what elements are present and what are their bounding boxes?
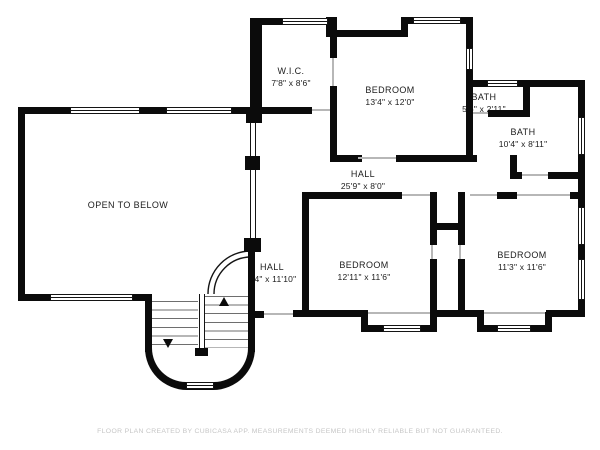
- window: [413, 17, 461, 24]
- room-label-bath: BATH 10'4" x 8'11": [499, 127, 548, 149]
- wall-segment: [18, 107, 25, 301]
- wall-segment: [430, 259, 437, 317]
- door-opening: [470, 194, 497, 196]
- wall-segment: [293, 310, 368, 317]
- room-name: W.I.C.: [271, 66, 310, 76]
- wall-segment: [330, 30, 408, 37]
- wall-segment: [578, 155, 585, 207]
- wall-segment: [18, 294, 50, 301]
- railing: [199, 294, 205, 350]
- wall-segment: [18, 107, 70, 114]
- wall-segment: [430, 192, 437, 245]
- wall-segment: [430, 223, 465, 230]
- room-dimensions: 7'8" x 8'6": [271, 78, 310, 88]
- window: [487, 80, 518, 87]
- wall-segment: [466, 80, 487, 87]
- room-dimensions: 11'3" x 11'6": [497, 262, 546, 272]
- wall-segment: [497, 192, 517, 199]
- door-opening: [368, 312, 430, 314]
- room-name: HALL: [341, 169, 385, 179]
- wall-segment: [488, 110, 530, 117]
- wall-segment: [361, 325, 385, 332]
- room-name: BEDROOM: [338, 260, 391, 270]
- wall-segment: [140, 107, 166, 114]
- wall-segment: [578, 245, 585, 259]
- wall-segment: [262, 107, 312, 114]
- door-opening: [402, 194, 430, 196]
- room-label-hall-upper: HALL 25'9" x 8'0": [341, 169, 385, 191]
- door-opening: [473, 112, 488, 114]
- stairs-down-arrow-icon: [163, 339, 173, 348]
- staircase-flight-down: [152, 301, 198, 348]
- door-opening: [332, 58, 334, 86]
- window: [578, 259, 585, 300]
- room-label-bedroom-left: BEDROOM 12'11" x 11'6": [338, 260, 391, 282]
- wall-segment: [578, 80, 585, 117]
- door-opening: [459, 245, 461, 259]
- window: [70, 107, 140, 114]
- room-name: OPEN TO BELOW: [88, 200, 168, 210]
- window: [466, 48, 473, 70]
- door-opening: [484, 312, 545, 314]
- door-opening: [358, 157, 396, 159]
- wall-segment: [248, 245, 255, 352]
- wall-segment: [330, 17, 337, 58]
- wall-segment: [195, 348, 208, 356]
- floor-plan: OPEN TO BELOW W.I.C. 7'8" x 8'6" BEDROOM…: [0, 0, 600, 450]
- room-label-open-to-below: OPEN TO BELOW: [88, 200, 168, 210]
- door-opening: [522, 174, 548, 176]
- wall-segment: [510, 172, 522, 179]
- wall-segment: [245, 156, 260, 170]
- wall-segment: [421, 325, 437, 332]
- railing: [250, 123, 256, 238]
- door-opening: [264, 313, 293, 315]
- wall-segment: [430, 310, 484, 317]
- room-name: BATH: [499, 127, 548, 137]
- wall-segment: [570, 192, 585, 199]
- wall-segment: [458, 192, 465, 245]
- door-opening: [431, 245, 433, 259]
- wall-segment: [302, 192, 309, 317]
- wall-segment: [244, 238, 261, 252]
- room-dimensions: 12'11" x 11'6": [338, 272, 391, 282]
- room-label-bedroom-top: BEDROOM 13'4" x 12'0": [365, 85, 414, 107]
- door-opening: [312, 109, 330, 111]
- window: [186, 382, 214, 389]
- wall-segment: [330, 86, 337, 162]
- window: [282, 18, 328, 25]
- room-dimensions: 10'4" x 8'11": [499, 139, 548, 149]
- room-name: BEDROOM: [365, 85, 414, 95]
- wall-segment: [246, 107, 262, 123]
- wall-segment: [531, 325, 552, 332]
- wall-segment: [546, 310, 585, 317]
- window: [578, 207, 585, 245]
- room-label-bedroom-right: BEDROOM 11'3" x 11'6": [497, 250, 546, 272]
- wall-segment: [466, 17, 473, 48]
- room-label-wic: W.I.C. 7'8" x 8'6": [271, 66, 310, 88]
- door-opening: [517, 194, 570, 196]
- window: [383, 325, 421, 332]
- room-name: BEDROOM: [497, 250, 546, 260]
- wall-segment: [145, 294, 152, 352]
- window: [50, 294, 133, 301]
- room-dimensions: 13'4" x 12'0": [365, 97, 414, 107]
- wall-segment: [477, 325, 497, 332]
- window: [497, 325, 531, 332]
- wall-segment: [396, 155, 477, 162]
- disclaimer-text: FLOOR PLAN CREATED BY CUBICASA APP. MEAS…: [0, 428, 600, 435]
- window: [578, 117, 585, 155]
- room-dimensions: 25'9" x 8'0": [341, 181, 385, 191]
- wall-segment: [518, 80, 534, 87]
- wall-segment: [250, 18, 262, 114]
- wall-segment: [458, 259, 465, 317]
- stairs-up-arrow-icon: [219, 297, 229, 306]
- window: [166, 107, 232, 114]
- wall-segment: [302, 192, 402, 199]
- wall-segment: [523, 87, 530, 110]
- wall-segment: [401, 17, 408, 34]
